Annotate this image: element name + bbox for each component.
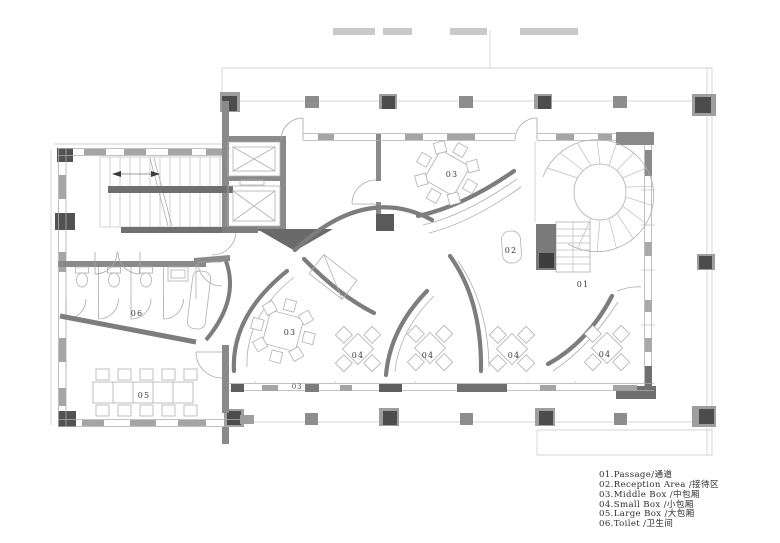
stair-handrail: [108, 186, 233, 193]
elevator-shaft: [228, 186, 280, 226]
toilet-block: [58, 256, 230, 342]
toilet-fixture: [76, 267, 189, 287]
cabinet-object: [309, 255, 357, 300]
legend-item-toilet: 06.Toilet /卫生间: [599, 520, 777, 530]
room-label-04: 04: [508, 351, 521, 360]
stair-direction-arrow: [112, 171, 121, 177]
room-label-01: 01: [577, 280, 590, 289]
straight-staircase: [100, 157, 233, 233]
room-label-03-top: 03: [446, 170, 459, 179]
legend: 01.Passage/通道 02.Reception Area /接待区 03.…: [599, 471, 777, 530]
room-label-02: 02: [505, 246, 518, 255]
reception-counter-06: [187, 270, 212, 330]
room-label-06: 06: [131, 309, 144, 318]
room-05: [93, 345, 229, 416]
elevator-core: [222, 134, 394, 251]
table-04: [321, 312, 395, 386]
wall-tag-label: 03: [292, 383, 303, 391]
floor-plan-page: 01 02 03 03 04 04 04 04 05 06 03 01.Pass…: [0, 0, 780, 543]
elevator-shaft: [228, 142, 280, 176]
table-04: [475, 312, 549, 386]
room-label-04: 04: [599, 350, 612, 359]
room-label-03-mid: 03: [284, 328, 297, 337]
room-label-04: 04: [422, 351, 435, 360]
spiral-staircase: [535, 140, 654, 272]
room-label-04: 04: [352, 351, 365, 360]
floor-plan-canvas: 01 02 03 03 04 04 04 04 05 06 03: [0, 0, 780, 543]
room-label-05: 05: [138, 391, 151, 400]
